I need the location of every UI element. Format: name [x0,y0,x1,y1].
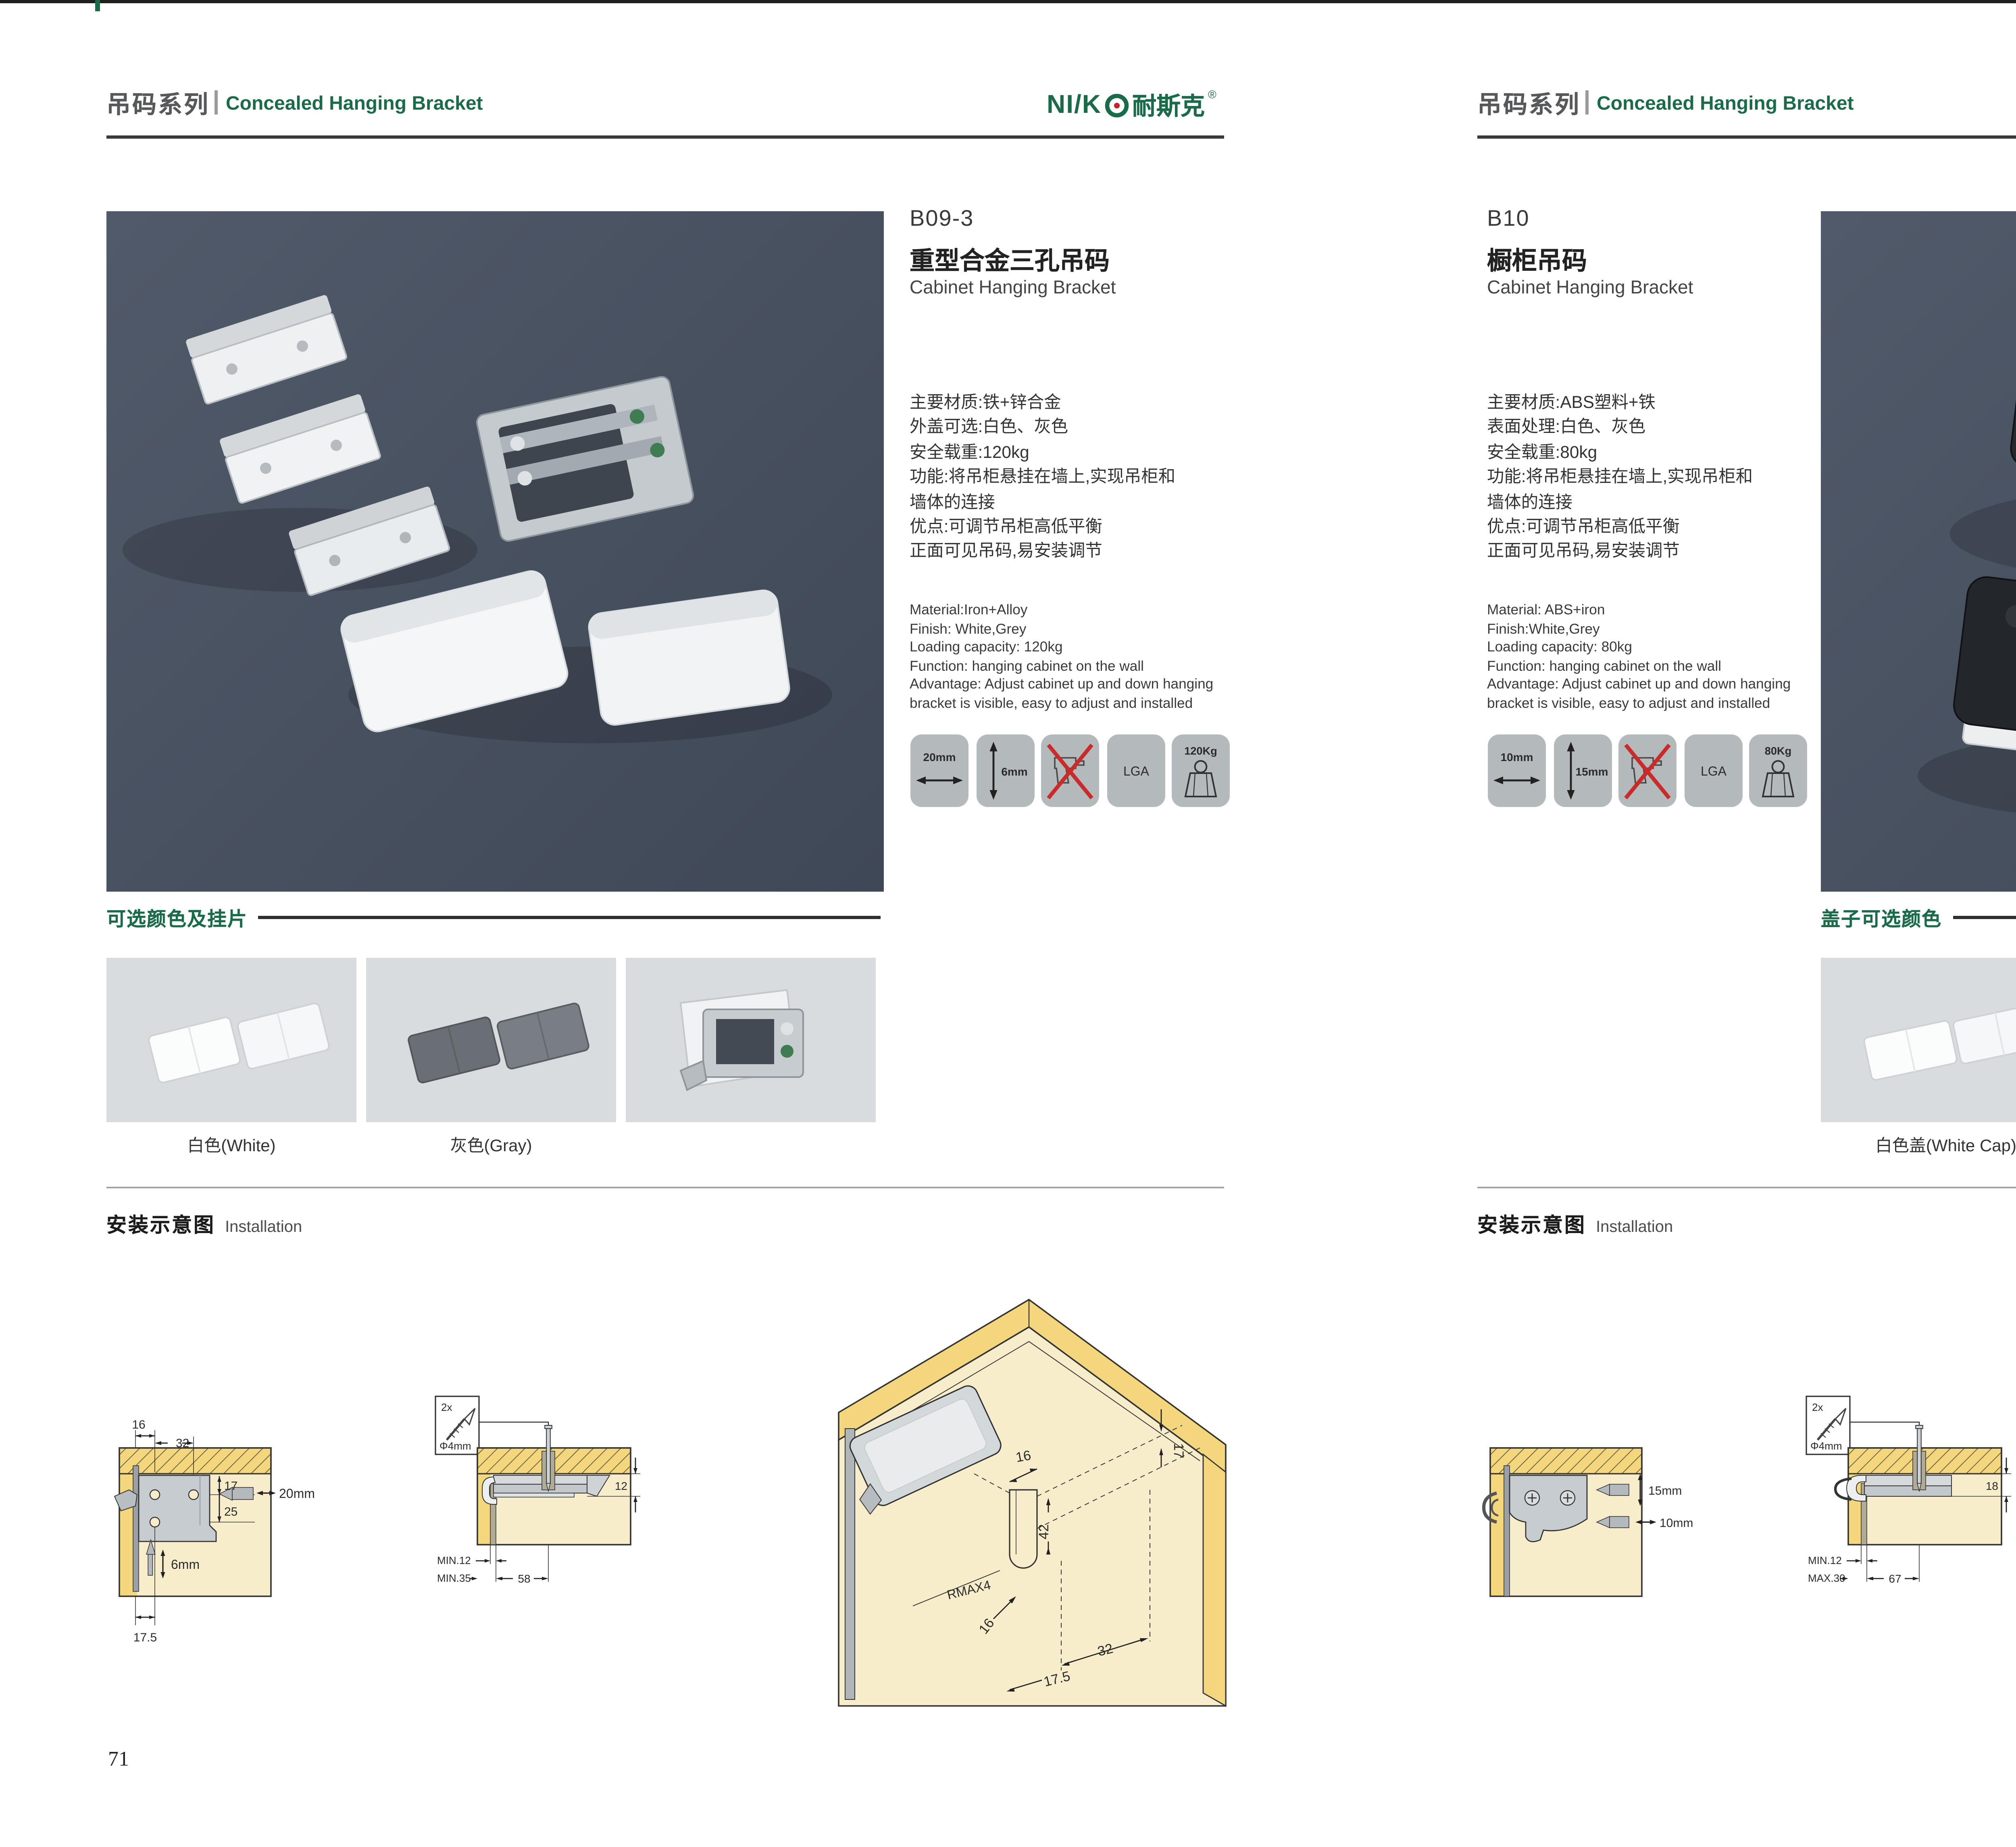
lga-cert-label: LGA [1700,764,1726,778]
svg-text:MAX.30: MAX.30 [1808,1572,1845,1584]
svg-text:Φ4mm: Φ4mm [439,1440,471,1452]
spec-line: Material:Iron+Alloy [910,601,1248,620]
spec-line: 功能:将吊柜悬挂在墙上,实现吊柜和 [1487,466,1818,491]
page2-product-code: B10 [1487,205,1530,231]
svg-text:MIN.35: MIN.35 [437,1572,471,1584]
svg-text:67: 67 [1889,1572,1901,1585]
page1-product-name-zh: 重型合金三孔吊码 [910,242,1110,277]
spec-line: 功能:将吊柜悬挂在墙上,实现吊柜和 [910,466,1240,491]
page1-feature-icons: 20mm 6mm LGA 120Kg [910,734,1231,808]
panel-thickness-value: 6mm [1000,765,1027,778]
page1-series-title-zh: 吊码系列 [106,87,210,121]
page2-swatch-label-white-cap: 白色盖(White Cap) [1821,1134,2016,1158]
spec-line: 墙体的连接 [910,491,1240,516]
svg-text:17.5: 17.5 [133,1631,157,1644]
page2-colors-title: 盖子可选颜色 [1821,905,1942,932]
spec-line: Advantage: Adjust cabinet up and down ha… [910,676,1248,695]
page1-product-code: B09-3 [910,205,974,231]
spec-line: Advantage: Adjust cabinet up and down ha… [1487,676,1826,695]
svg-text:17: 17 [1171,1443,1186,1458]
svg-text:16: 16 [132,1418,145,1431]
page1-section-divider [106,1187,1224,1188]
spec-line: 安全载重:120kg [910,441,1240,466]
page1-installation-title: 安装示意图Installation [106,1208,302,1240]
spec-line: 优点:可调节吊柜高低平衡 [910,516,1240,541]
load-capacity-value: 120Kg [1184,745,1217,757]
page2-product-name-zh: 橱柜吊码 [1487,242,1587,277]
page1-product-photo [106,211,884,892]
spec-line: 正面可见吊码,易安装调节 [910,541,1240,566]
load-capacity-icon: 80Kg [1748,734,1808,808]
page1-specs-en: Material:Iron+Alloy Finish: White,Grey L… [910,601,1248,713]
page1-swatch-white [106,958,356,1122]
panel-thickness-icon: 6mm [975,734,1035,808]
brand-logo-reg: ® [1208,90,1216,102]
installation-title-zh: 安装示意图 [106,1214,215,1237]
bracket-art [626,958,876,1122]
svg-text:6mm: 6mm [171,1557,200,1572]
top-border-line [0,0,2016,2]
page1-install-diagram-front: 6mm 20mm 16 32 17 25 17.5 [106,1412,324,1661]
panel-thickness-value: 15mm [1575,765,1608,778]
page1-colors-title: 可选颜色及挂片 [106,905,248,932]
page2-install-diagram-front: 15mm 10mm [1477,1412,1695,1661]
spec-line: bracket is visible, easy to adjust and i… [1487,695,1826,713]
gray-caps-art [366,958,616,1122]
page2-product-photo-art [1821,211,2016,892]
svg-text:12: 12 [615,1480,627,1492]
page1-swatch-label-gray: 灰色(Gray) [366,1134,616,1158]
page1-swatch-label-white: 白色(White) [106,1134,356,1158]
page2-series-title-en: Concealed Hanging Bracket [1597,92,1854,114]
page1-product-name-en: Cabinet Hanging Bracket [910,279,1116,298]
page2-installation-title: 安装示意图Installation [1477,1208,1673,1240]
panel-thickness-icon: 15mm [1552,734,1612,808]
svg-text:18: 18 [1986,1480,1998,1492]
spec-line: 安全载重:80kg [1487,441,1818,466]
page1-swatch-bracket [626,958,876,1122]
installation-title-zh: 安装示意图 [1477,1214,1586,1237]
svg-text:2x: 2x [1812,1401,1823,1413]
spec-line: 外盖可选:白色、灰色 [910,417,1240,442]
spec-line: 正面可见吊码,易安装调节 [1487,541,1818,566]
installation-title-en: Installation [225,1219,302,1237]
page2-product-name-en: Cabinet Hanging Bracket [1487,279,1693,298]
white-caps-art [106,958,356,1122]
brand-logo-cn: 耐斯克 [1132,89,1205,123]
page2-section-divider [1477,1187,2016,1188]
spec-line: Function: hanging cabinet on the wall [910,657,1248,676]
lga-cert-icon: LGA [1683,734,1743,808]
page2-specs-en: Material: ABS+iron Finish:White,Grey Loa… [1487,601,1826,713]
page2-swatch-white-cap [1821,958,2016,1122]
page2-series-title-zh: 吊码系列 [1477,87,1581,121]
lga-cert-icon: LGA [1106,734,1165,808]
page2-colors-rule [1953,916,2016,919]
spec-line: 主要材质:ABS塑料+铁 [1487,392,1818,417]
page1-header-divider [215,90,217,114]
installation-title-en: Installation [1596,1219,1673,1237]
svg-text:58: 58 [518,1572,530,1585]
spec-line: Finish: White,Grey [910,620,1248,639]
svg-text:10mm: 10mm [1660,1516,1693,1530]
svg-text:17: 17 [224,1479,237,1493]
page2-feature-icons: 10mm 15mm LGA 80Kg [1487,734,1808,808]
spec-line: 优点:可调节吊柜高低平衡 [1487,516,1818,541]
svg-text:2x: 2x [441,1401,452,1413]
spec-line: Material: ABS+iron [1487,601,1826,620]
page1-install-diagram-section: 2x Φ4mm 12 MIN.12 MIN.35 58 [432,1390,642,1595]
white-caps-art [1821,958,2016,1122]
catalog-spread: 吊码系列 Concealed Hanging Bracket NI/K 耐斯克 … [0,0,2016,1847]
page1-colors-rule [258,916,881,919]
spec-line: 表面处理:白色、灰色 [1487,417,1818,442]
no-drill-icon [1618,734,1677,808]
page1-product-photo-art [106,211,884,892]
page1-specs-zh: 主要材质:铁+锌合金 外盖可选:白色、灰色 安全载重:120kg 功能:将吊柜悬… [910,392,1240,566]
spec-line: Finish:White,Grey [1487,620,1826,639]
svg-text:20mm: 20mm [279,1486,315,1501]
svg-text:15mm: 15mm [1648,1484,1682,1498]
page1-install-diagram-cabinet: 16 17 42 RMAX4 16 32 17.5 [819,1283,1235,1728]
load-capacity-value: 80Kg [1765,745,1791,757]
svg-text:25: 25 [224,1505,237,1518]
no-drill-icon [1040,734,1100,808]
page2-header-divider [1585,90,1588,114]
brand-logo-latin: NI/K [1047,91,1102,120]
spec-line: Function: hanging cabinet on the wall [1487,657,1826,676]
brand-logo: NI/K 耐斯克 ® [1047,89,1216,123]
page1-series-title-en: Concealed Hanging Bracket [226,92,483,114]
svg-text:MIN.12: MIN.12 [437,1554,471,1566]
spec-line: Loading capacity: 120kg [910,639,1248,657]
panel-width-value: 20mm [923,751,956,763]
page1-header-underline [106,135,1224,138]
svg-text:MIN.12: MIN.12 [1808,1554,1842,1566]
page1-number: 71 [108,1746,129,1772]
svg-text:Φ4mm: Φ4mm [1810,1440,1842,1452]
svg-text:16: 16 [1014,1448,1032,1465]
svg-text:42: 42 [1036,1524,1052,1539]
page2-specs-zh: 主要材质:ABS塑料+铁 表面处理:白色、灰色 安全载重:80kg 功能:将吊柜… [1487,392,1818,566]
spec-line: 墙体的连接 [1487,491,1818,516]
lga-cert-label: LGA [1123,764,1149,778]
spec-line: 主要材质:铁+锌合金 [910,392,1240,417]
page2-install-diagram-section: 2x Φ4mm 18 MIN.12 MAX.30 67 [1803,1390,2013,1595]
load-capacity-icon: 120Kg [1171,734,1231,808]
panel-width-icon: 10mm [1487,734,1547,808]
panel-width-value: 10mm [1501,751,1533,763]
brand-logo-o-icon [1105,94,1129,118]
spec-line: Loading capacity: 80kg [1487,639,1826,657]
crop-mark [95,0,100,11]
panel-width-icon: 20mm [910,734,969,808]
page1-swatch-gray [366,958,616,1122]
page2-product-photo [1821,211,2016,892]
spec-line: bracket is visible, easy to adjust and i… [910,695,1248,713]
page2-header-underline [1477,135,2016,138]
